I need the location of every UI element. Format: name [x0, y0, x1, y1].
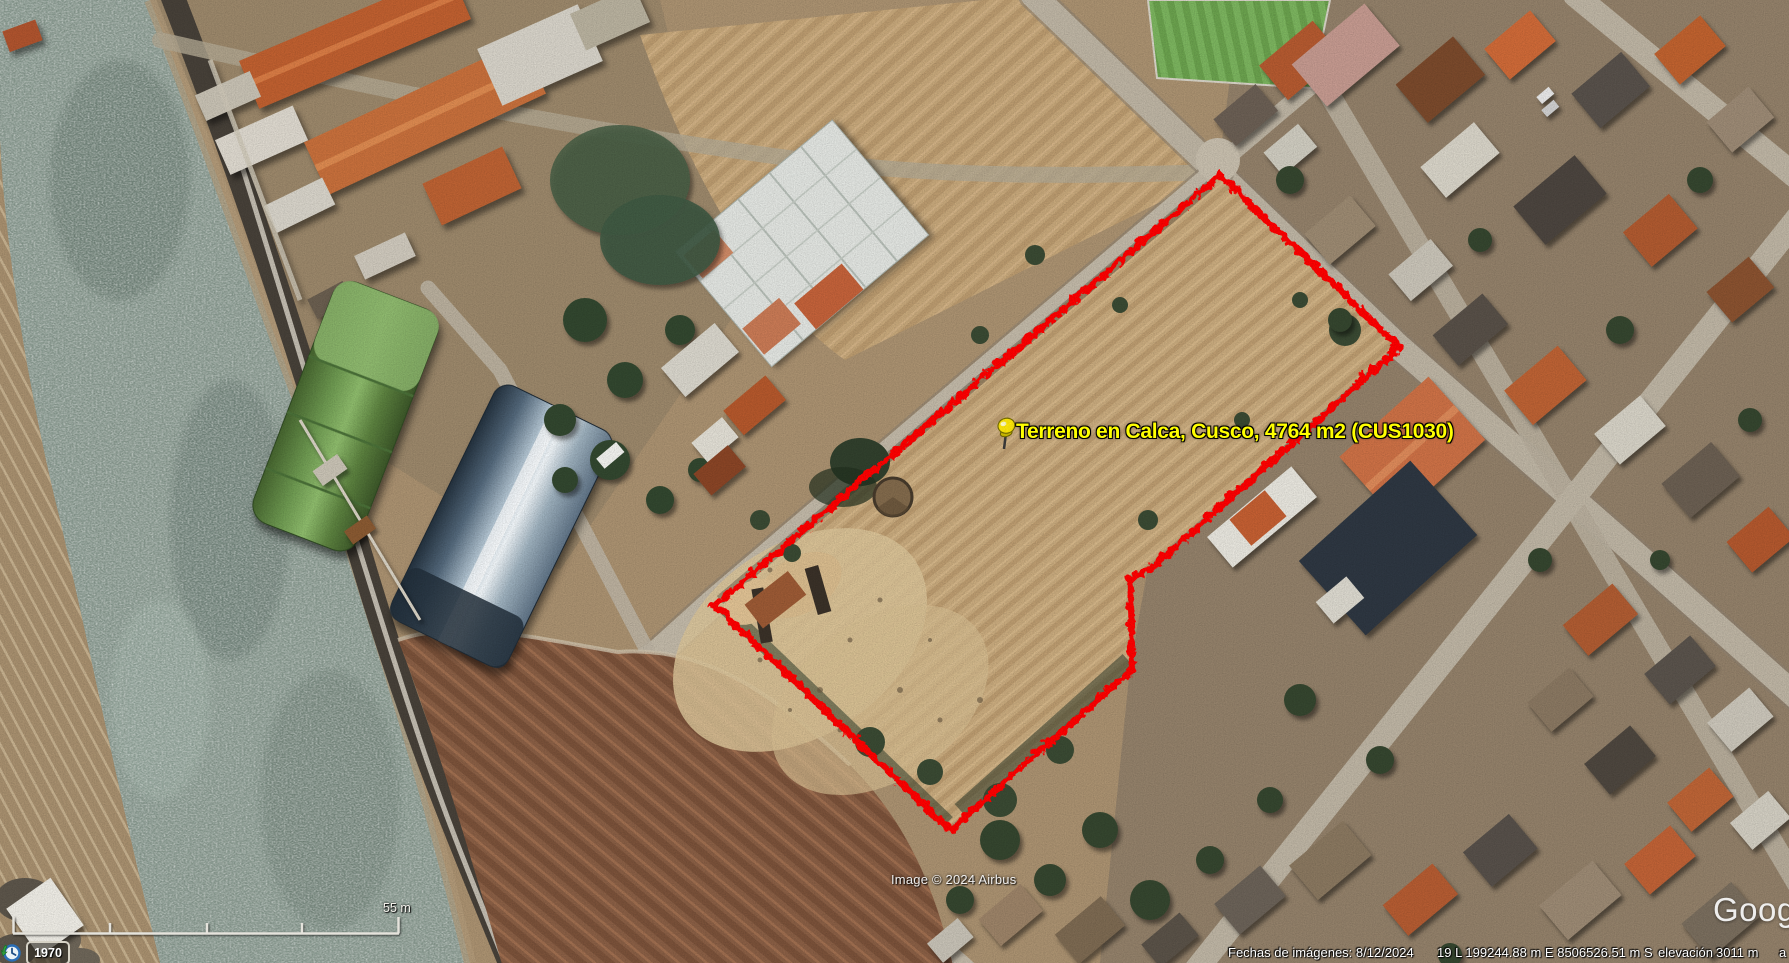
grain-overlay — [0, 0, 1789, 963]
google-watermark: Goog — [1713, 891, 1789, 929]
time-slider-year-badge[interactable]: 1970 — [26, 941, 70, 963]
google-earth-viewport: Terreno en Calca, Cusco, 4764 m2 (CUS103… — [0, 0, 1789, 963]
status-imagery-date: Fechas de imágenes: 8/12/2024 — [1228, 945, 1414, 960]
time-slider-year: 1970 — [34, 946, 62, 960]
status-truncated-text: a — [1779, 945, 1786, 960]
placemark-label[interactable]: Terreno en Calca, Cusco, 4764 m2 (CUS103… — [1016, 420, 1454, 444]
status-elevation-label: elevación — [1658, 945, 1713, 960]
scale-bar-label: 55 m — [383, 901, 411, 915]
status-elevation-value: 3011 m — [1716, 945, 1758, 960]
history-clock-icon[interactable] — [1, 943, 23, 963]
map-canvas[interactable] — [0, 0, 1789, 963]
status-utm-coordinates: 19 L 199244.88 m E 8506526.51 m S — [1437, 945, 1653, 960]
imagery-attribution: Image © 2024 Airbus — [891, 872, 1016, 887]
